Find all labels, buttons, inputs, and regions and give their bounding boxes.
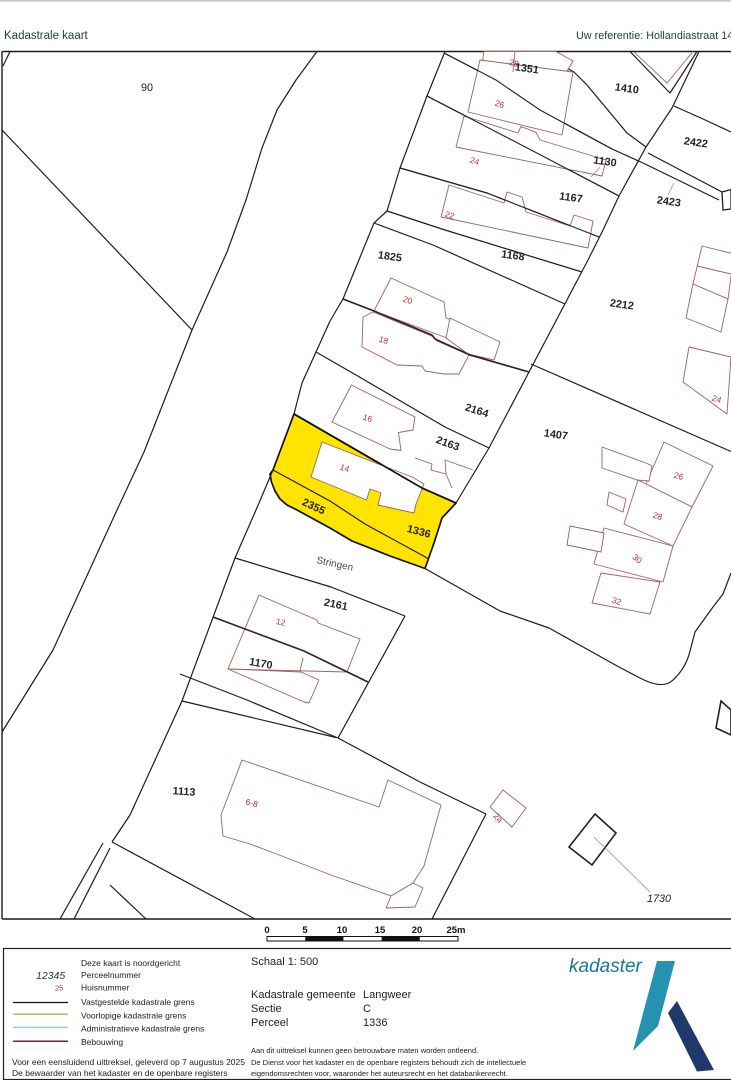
- svg-text:Voor een eensluidend uittrekse: Voor een eensluidend uittreksel, gelever…: [12, 1057, 245, 1067]
- svg-text:Administratieve kadastrale gre: Administratieve kadastrale grens: [81, 1024, 204, 1034]
- svg-text:Langweer: Langweer: [363, 989, 412, 1001]
- svg-text:10: 10: [337, 925, 348, 936]
- svg-text:Sectie: Sectie: [251, 1003, 282, 1015]
- svg-text:15: 15: [375, 925, 386, 936]
- svg-text:1730: 1730: [647, 893, 671, 905]
- svg-text:20: 20: [412, 925, 423, 936]
- svg-text:C: C: [363, 1003, 371, 1015]
- svg-text:25: 25: [55, 984, 63, 993]
- svg-text:Deze kaart is noordgericht: Deze kaart is noordgericht: [81, 958, 181, 968]
- svg-text:1336: 1336: [363, 1017, 387, 1029]
- svg-text:0: 0: [264, 925, 269, 936]
- svg-text:Vastgestelde kadastrale grens: Vastgestelde kadastrale grens: [81, 997, 195, 1007]
- svg-text:De Dienst voor het kadaster en: De Dienst voor het kadaster en de openba…: [251, 1058, 526, 1067]
- svg-text:25m: 25m: [446, 925, 465, 936]
- svg-text:Schaal 1: 500: Schaal 1: 500: [251, 956, 318, 968]
- svg-text:Perceelnummer: Perceelnummer: [81, 970, 141, 980]
- svg-text:eigendomsrechten voor, waarond: eigendomsrechten voor, waaronder het aut…: [251, 1069, 508, 1078]
- svg-text:1113: 1113: [172, 785, 196, 799]
- svg-text:Bebouwing: Bebouwing: [81, 1037, 123, 1047]
- svg-text:90: 90: [141, 82, 153, 94]
- svg-text:5: 5: [302, 925, 308, 936]
- svg-text:Voorlopige kadastrale grens: Voorlopige kadastrale grens: [81, 1011, 186, 1021]
- svg-text:kadaster: kadaster: [569, 956, 643, 977]
- svg-text:De bewaarder van het kadaster: De bewaarder van het kadaster en de open…: [12, 1068, 227, 1078]
- svg-text:Kadastrale kaart: Kadastrale kaart: [4, 30, 89, 42]
- svg-text:Uw referentie: Hollandiastraat: Uw referentie: Hollandiastraat 14: [576, 30, 731, 42]
- svg-text:Huisnummer: Huisnummer: [81, 983, 129, 993]
- svg-text:12345: 12345: [36, 970, 65, 982]
- svg-text:Kadastrale gemeente: Kadastrale gemeente: [251, 989, 356, 1001]
- svg-text:Aan dit uittreksel kunnen geen: Aan dit uittreksel kunnen geen betrouwba…: [251, 1046, 478, 1055]
- svg-text:Perceel: Perceel: [251, 1017, 288, 1029]
